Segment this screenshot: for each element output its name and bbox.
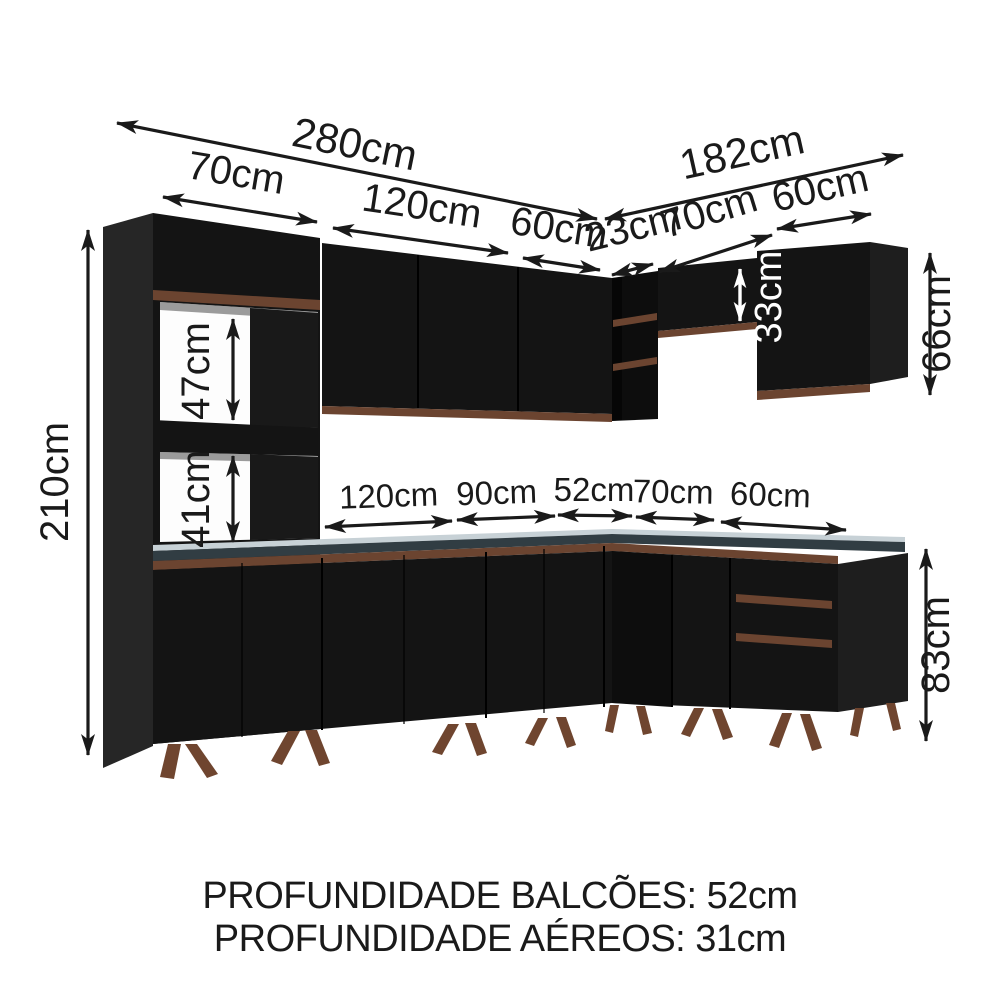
dim-label-base-60: 60cm <box>729 475 811 515</box>
corner-open-shelf <box>612 271 658 421</box>
corner-shelf-inner-shadow <box>612 277 622 421</box>
upper-right-side-panel <box>870 242 908 384</box>
base-right-side-panel <box>838 553 908 712</box>
dim-label-bridge-33: 33cm <box>748 251 790 344</box>
tower-side-panel <box>103 213 153 768</box>
arrow-base-60 <box>721 522 846 530</box>
depth-note-counters: PROFUNDIDADE BALCÕES: 52cm <box>202 873 797 917</box>
dim-label-niche-41: 41cm <box>174 450 218 548</box>
dim-label-base-120: 120cm <box>338 475 438 515</box>
kitchen-diagram-canvas: 280cm 182cm 70cm 120cm 60cm 23cm 70cm 60… <box>0 0 1000 1000</box>
dim-label-base-70: 70cm <box>633 472 714 510</box>
base-cabinets-right <box>612 543 908 712</box>
depth-notes: PROFUNDIDADE BALCÕES: 52cm PROFUNDIDADE … <box>202 873 797 960</box>
corner-base-front <box>612 551 672 707</box>
dim-label-base-90: 90cm <box>456 473 538 513</box>
base-cabinets-left <box>153 543 612 744</box>
arrow-base-120 <box>325 521 452 527</box>
niche-upper-side <box>250 308 318 428</box>
niche-lower-side <box>250 454 318 540</box>
dim-label-base-52: 52cm <box>554 471 635 508</box>
dim-label-left-total: 280cm <box>288 108 421 179</box>
dim-label-base-83: 83cm <box>914 596 958 694</box>
dim-label-upper-70-right: 70cm <box>656 176 762 247</box>
dim-label-height-210: 210cm <box>33 422 77 542</box>
dim-label-niche-47: 47cm <box>174 322 218 420</box>
depth-note-wall-units: PROFUNDIDADE AÉREOS: 31cm <box>214 917 786 960</box>
product-dimension-diagram: 280cm 182cm 70cm 120cm 60cm 23cm 70cm 60… <box>0 0 1000 1000</box>
arrow-base-52 <box>558 515 632 516</box>
dim-label-tower-width: 70cm <box>184 143 288 203</box>
arrow-base-70 <box>636 517 714 520</box>
upper-left-front <box>322 243 612 414</box>
dim-label-upper-120: 120cm <box>359 176 484 237</box>
arrow-upper-60-left <box>523 258 600 270</box>
dim-label-wall-66: 66cm <box>915 275 959 373</box>
arrow-base-90 <box>457 516 555 520</box>
base-left-front <box>153 551 612 744</box>
upper-cabinets-left <box>322 243 612 422</box>
